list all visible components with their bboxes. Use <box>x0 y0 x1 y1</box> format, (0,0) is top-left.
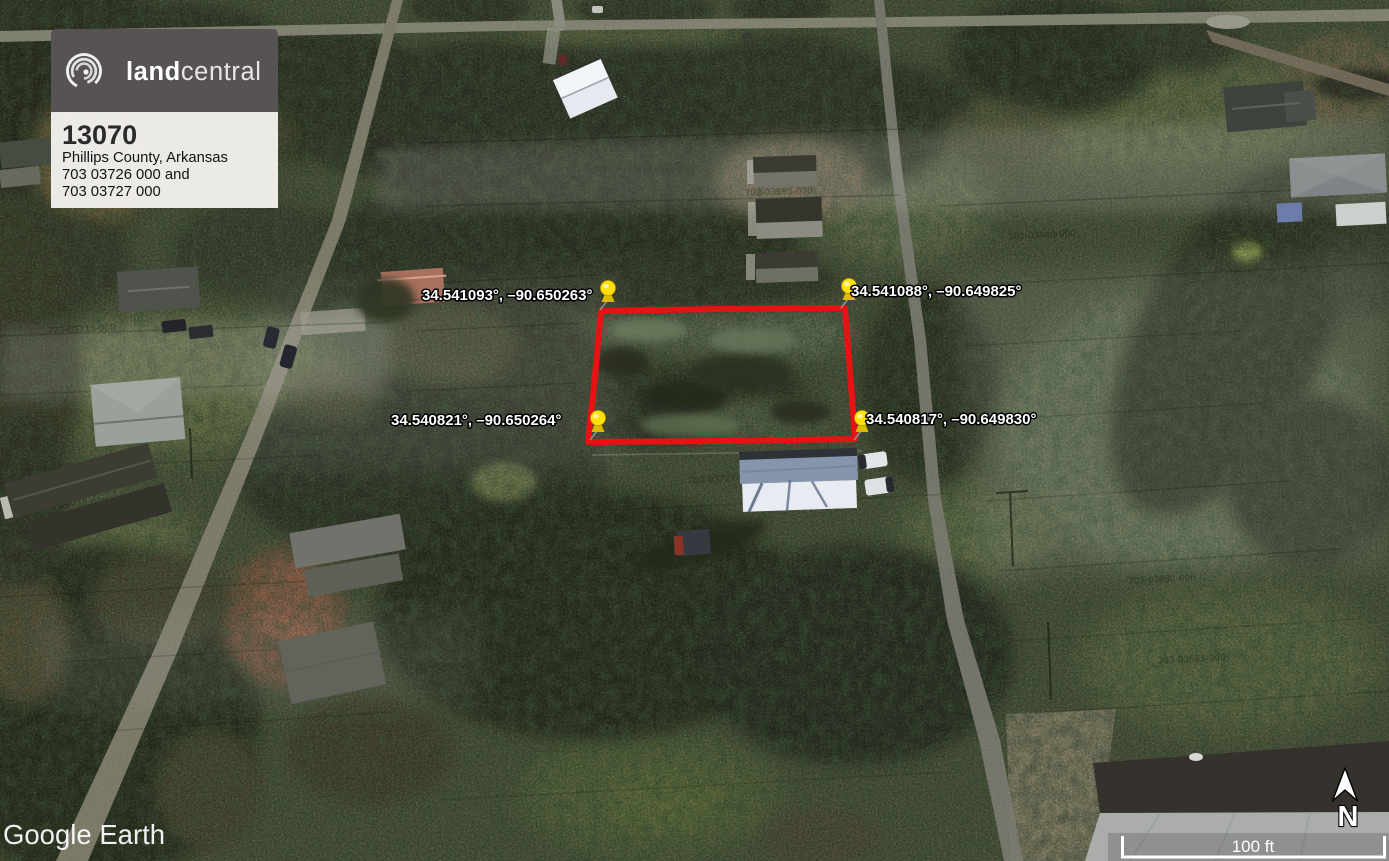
svg-text:landcentral: landcentral <box>126 58 262 86</box>
svg-text:703 03727 000: 703 03727 000 <box>62 184 161 200</box>
svg-text:100 ft: 100 ft <box>1232 837 1275 856</box>
svg-text:34.540817°, –90.649830°: 34.540817°, –90.649830° <box>866 411 1037 428</box>
svg-text:703 03726 000 and: 703 03726 000 and <box>62 167 190 183</box>
svg-text:34.541093°, –90.650263°: 34.541093°, –90.650263° <box>422 287 593 304</box>
svg-text:Phillips County, Arkansas: Phillips County, Arkansas <box>62 150 228 166</box>
svg-text:34.540821°, –90.650264°: 34.540821°, –90.650264° <box>391 412 562 429</box>
svg-text:34.541088°, –90.649825°: 34.541088°, –90.649825° <box>851 283 1022 300</box>
svg-text:Google Earth: Google Earth <box>3 819 165 850</box>
svg-text:N: N <box>1338 801 1359 833</box>
svg-text:13070: 13070 <box>62 120 137 150</box>
